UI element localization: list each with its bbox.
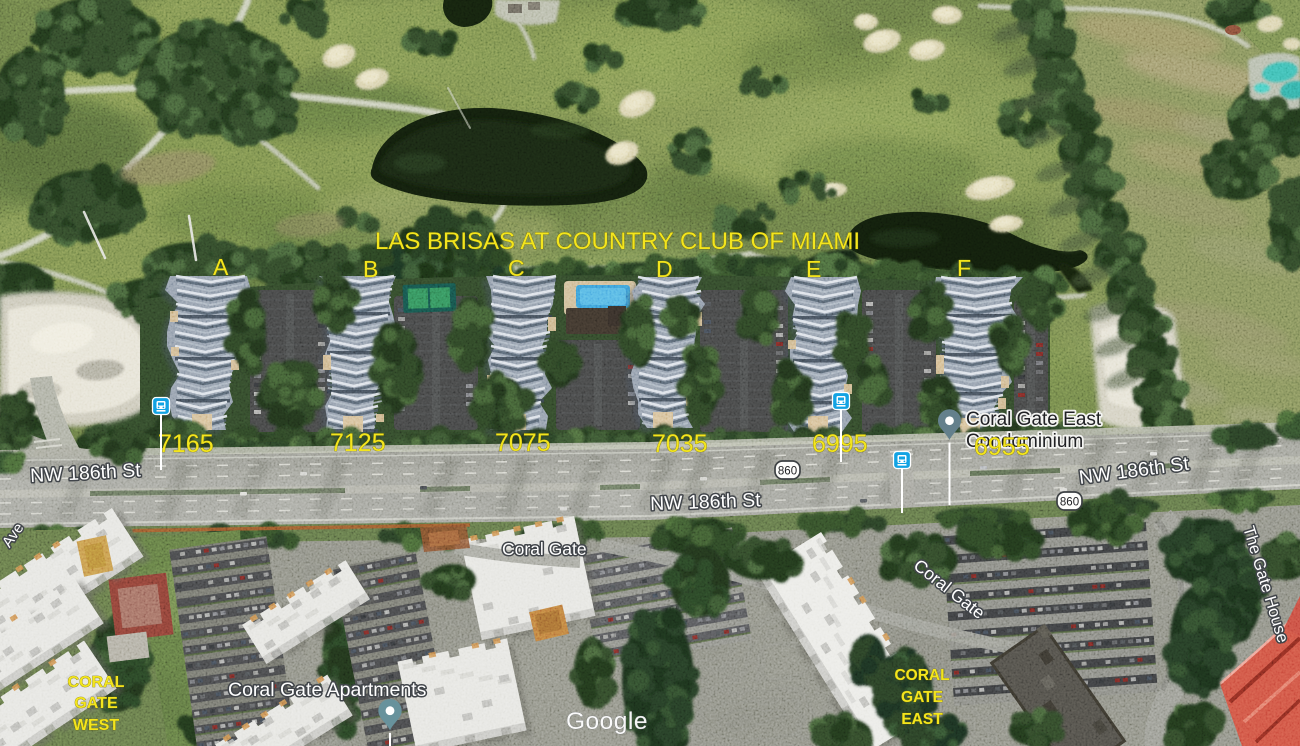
svg-text:6955: 6955 [974,433,1030,461]
svg-text:CORAL: CORAL [894,667,949,684]
svg-text:Google: Google [566,708,648,735]
svg-text:WEST: WEST [73,717,119,734]
svg-text:CORAL: CORAL [68,674,125,691]
svg-text:B: B [363,256,378,282]
svg-text:860: 860 [1060,497,1079,509]
svg-text:GATE: GATE [901,689,943,706]
svg-text:A: A [213,254,229,280]
svg-text:7075: 7075 [495,429,551,457]
svg-text:Coral Gate East: Coral Gate East [966,409,1102,430]
svg-text:7125: 7125 [330,429,386,457]
svg-text:C: C [508,255,525,281]
svg-text:Coral Gate: Coral Gate [502,539,587,559]
svg-text:NW 186th St: NW 186th St [650,489,762,515]
svg-text:F: F [957,255,971,281]
svg-text:7035: 7035 [652,430,708,458]
svg-text:Coral Gate Apartments: Coral Gate Apartments [228,679,427,701]
svg-text:LAS BRISAS AT COUNTRY CLUB OF: LAS BRISAS AT COUNTRY CLUB OF MIAMI [375,228,860,255]
svg-text:E: E [806,256,821,282]
svg-text:860: 860 [778,466,797,478]
svg-text:7165: 7165 [158,430,214,458]
svg-text:D: D [656,256,673,282]
svg-text:EAST: EAST [901,711,943,728]
svg-text:GATE: GATE [74,695,118,712]
svg-text:6995: 6995 [812,430,868,458]
